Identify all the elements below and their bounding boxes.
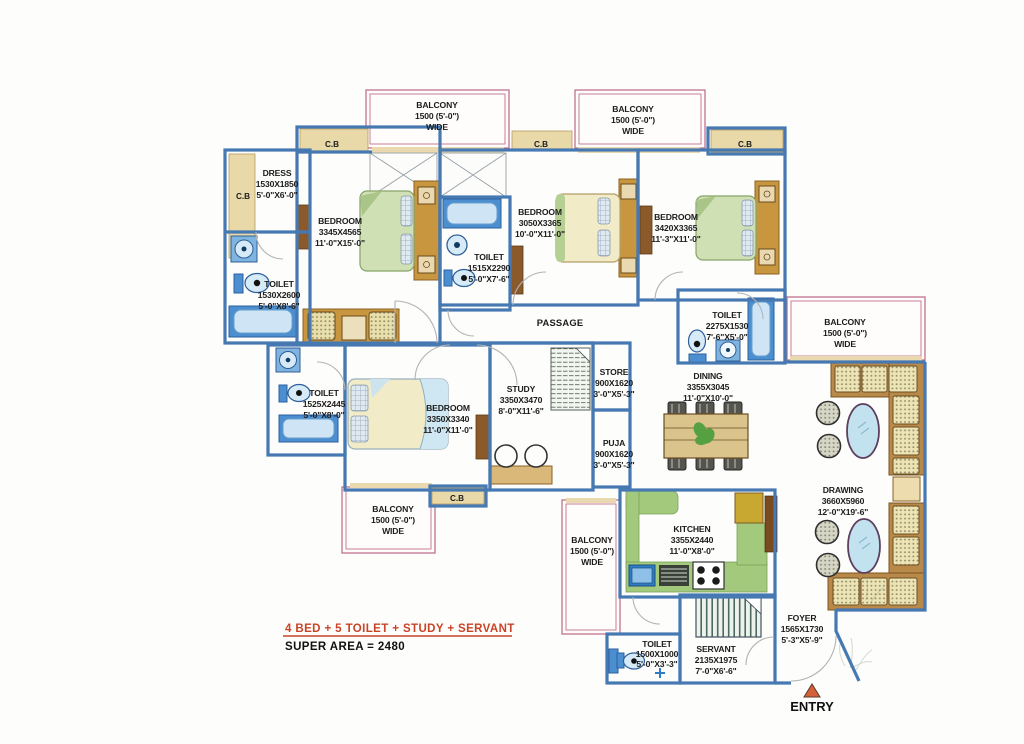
stool-icon [495, 445, 517, 467]
room-name: KITCHEN [673, 524, 710, 534]
wc-icon [279, 385, 287, 402]
room-dim-mm: 3350X3340 [427, 414, 470, 424]
room-dim-mm: 3050X3365 [519, 218, 562, 228]
room-name: TOILET [712, 310, 742, 320]
room-name: STORE [600, 367, 629, 377]
room-dim-mm: 1530X1850 [256, 179, 299, 189]
label-bedroom2: BEDROOM 3050X3365 10'-0"X11'-0" [515, 207, 565, 239]
room-name: BEDROOM [318, 216, 362, 226]
bed-icon-bedroom3 [696, 181, 779, 274]
room-dim-mm: 900X1620 [595, 378, 633, 388]
room-dim-ft: WIDE [382, 526, 404, 536]
room-name: DRAWING [823, 485, 864, 495]
entry-arrow-icon [804, 684, 820, 697]
room-name: BEDROOM [518, 207, 562, 217]
fridge-icon [735, 493, 763, 523]
label-study: STUDY 3350X3470 8'-0"X11'-6" [498, 384, 543, 416]
balcony-bottom-middle [562, 500, 620, 634]
chairs-bedroom1 [303, 309, 399, 343]
label-toilet2: TOILET 1515X2290 5'-0"X7'-6" [468, 252, 511, 284]
passage-label: PASSAGE [537, 317, 584, 328]
room-name: BEDROOM [654, 212, 698, 222]
corner-table-icon [893, 477, 920, 501]
room-dim-ft: 11'-0"X11'-0" [423, 425, 473, 435]
room-dim-ft: 7'-0"X6'-6" [695, 666, 736, 676]
room-dim-ft: WIDE [426, 122, 448, 132]
room-dim-mm: 1525X2445 [303, 399, 346, 409]
room-name: SERVANT [696, 644, 736, 654]
cb-label: C.B [450, 494, 464, 503]
room-dim-ft: 5'-0"X6'-0" [256, 190, 297, 200]
room-dim-mm: 1500 (5'-0") [611, 115, 655, 125]
study-furniture [490, 445, 552, 484]
summary-line: 4 BED + 5 TOILET + STUDY + SERVANT [285, 623, 515, 635]
drainboard-icon [659, 565, 689, 586]
bed-icon-bedroom1 [360, 181, 440, 280]
super-area-line: SUPER AREA = 2480 [285, 641, 405, 653]
room-dim-ft: WIDE [581, 557, 603, 567]
desk-icon [490, 466, 552, 484]
label-kitchen: KITCHEN 3355X2440 11'-0"X8'-0" [669, 524, 714, 556]
room-dim-ft: 7'-6"X5'-0" [706, 332, 747, 342]
room-dim-ft: WIDE [834, 339, 856, 349]
floor-plan: BALCONY 1500 (5'-0") WIDE BALCONY 1500 (… [0, 0, 1024, 744]
floor-plan-canvas: BALCONY 1500 (5'-0") WIDE BALCONY 1500 (… [0, 0, 1024, 744]
room-name: FOYER [788, 613, 818, 623]
label-foyer: FOYER 1565X1730 5'-3"X5'-9" [781, 613, 824, 645]
room-name: TOILET [642, 639, 672, 649]
label-toilet3: TOILET 2275X1530 7'-6"X5'-0" [706, 310, 749, 342]
room-dim-ft: 10'-0"X11'-0" [515, 229, 565, 239]
label-servant: SERVANT 2135X1975 7'-0"X6'-6" [695, 644, 738, 676]
room-dim-ft: 8'-0"X11'-6" [498, 406, 543, 416]
room-name: BEDROOM [426, 403, 470, 413]
room-dim-mm: 1565X1730 [781, 624, 824, 634]
room-name: DRESS [263, 168, 292, 178]
room-dim-ft: 11'-0"X8'-0" [669, 546, 714, 556]
room-dim-mm: 1500 (5'-0") [570, 546, 614, 556]
room-name: BALCONY [416, 100, 458, 110]
room-dim-ft: 11'-0"X10'-0" [683, 393, 733, 403]
room-dim-ft: 3'-0"X5'-3" [593, 389, 634, 399]
label-bedroom3: BEDROOM 3420X3365 11'-3"X11'-0" [651, 212, 701, 244]
room-dim-mm: 1530X2600 [258, 290, 301, 300]
stove-icon [693, 562, 724, 589]
room-dim-ft: 5'-0"X8'-0" [303, 410, 344, 420]
cb-label: C.B [738, 140, 752, 149]
room-dim-ft: 12'-0"X19'-6" [818, 507, 868, 517]
label-dining: DINING 3355X3045 11'-0"X10'-0" [683, 371, 733, 403]
room-dim-mm: 1500X1000 [636, 649, 679, 659]
cb-label: C.B [325, 140, 339, 149]
bed-icon-bedroom2 [556, 179, 639, 277]
servant-bed-icon [696, 597, 761, 637]
room-dim-ft: 5'-0"X7'-6" [468, 274, 509, 284]
room-name: STUDY [507, 384, 536, 394]
room-dim-ft: 3'-0"X5'-3" [593, 460, 634, 470]
room-name: BALCONY [372, 504, 414, 514]
room-dim-mm: 2275X1530 [706, 321, 749, 331]
label-bedroom4: BEDROOM 3350X3340 11'-0"X11'-0" [423, 403, 473, 435]
room-dim-ft: 11'-0"X15'-0" [315, 238, 365, 248]
room-dim-mm: 3355X3045 [687, 382, 730, 392]
room-dim-mm: 1500 (5'-0") [371, 515, 415, 525]
room-name: BALCONY [824, 317, 866, 327]
room-dim-mm: 3355X2440 [671, 535, 714, 545]
label-bedroom1: BEDROOM 3345X4565 11'-0"X15'-0" [315, 216, 365, 248]
room-dim-ft: 5'-3"X5'-9" [781, 635, 822, 645]
label-drawing: DRAWING 3660X5960 12'-0"X19'-6" [818, 485, 868, 517]
room-dim-mm: 1515X2290 [468, 263, 511, 273]
label-toilet5: TOILET 1500X1000 5'-0"X3'-3" [636, 639, 679, 669]
label-toilet4: TOILET 1525X2445 5'-0"X8'-0" [303, 388, 346, 420]
cb-label: C.B [236, 192, 250, 201]
dining-table-icon [664, 402, 748, 470]
wc-icon [444, 270, 452, 286]
room-dim-mm: 900X1620 [595, 449, 633, 459]
cb-label: C.B [534, 140, 548, 149]
room-dim-ft: 11'-3"X11'-0" [651, 234, 701, 244]
room-dim-ft: 5'-0"X3'-3" [636, 659, 677, 669]
room-dim-mm: 2135X1975 [695, 655, 738, 665]
room-name: TOILET [474, 252, 504, 262]
entry-label: ENTRY [790, 699, 834, 714]
wc-icon [234, 274, 243, 293]
room-name: TOILET [309, 388, 339, 398]
plan-summary: 4 BED + 5 TOILET + STUDY + SERVANT SUPER… [283, 623, 515, 653]
room-dim-mm: 1500 (5'-0") [415, 111, 459, 121]
room-name: TOILET [264, 279, 294, 289]
room-dim-mm: 3420X3365 [655, 223, 698, 233]
room-name: BALCONY [571, 535, 613, 545]
label-dress: DRESS 1530X1850 5'-0"X6'-0" [256, 168, 299, 200]
room-dim-ft: WIDE [622, 126, 644, 136]
stool-icon [525, 445, 547, 467]
room-name: PUJA [603, 438, 625, 448]
room-dim-mm: 3660X5960 [822, 496, 865, 506]
store-shelf-icon [551, 348, 590, 410]
room-dim-mm: 1500 (5'-0") [823, 328, 867, 338]
room-dim-ft: 5'-0"X8'-6" [258, 301, 299, 311]
room-dim-mm: 3350X3470 [500, 395, 543, 405]
label-toilet1: TOILET 1530X2600 5'-0"X8'-6" [258, 279, 301, 311]
room-name: BALCONY [612, 104, 654, 114]
entry-marker: ENTRY [790, 684, 834, 714]
room-dim-mm: 3345X4565 [319, 227, 362, 237]
room-name: DINING [693, 371, 723, 381]
